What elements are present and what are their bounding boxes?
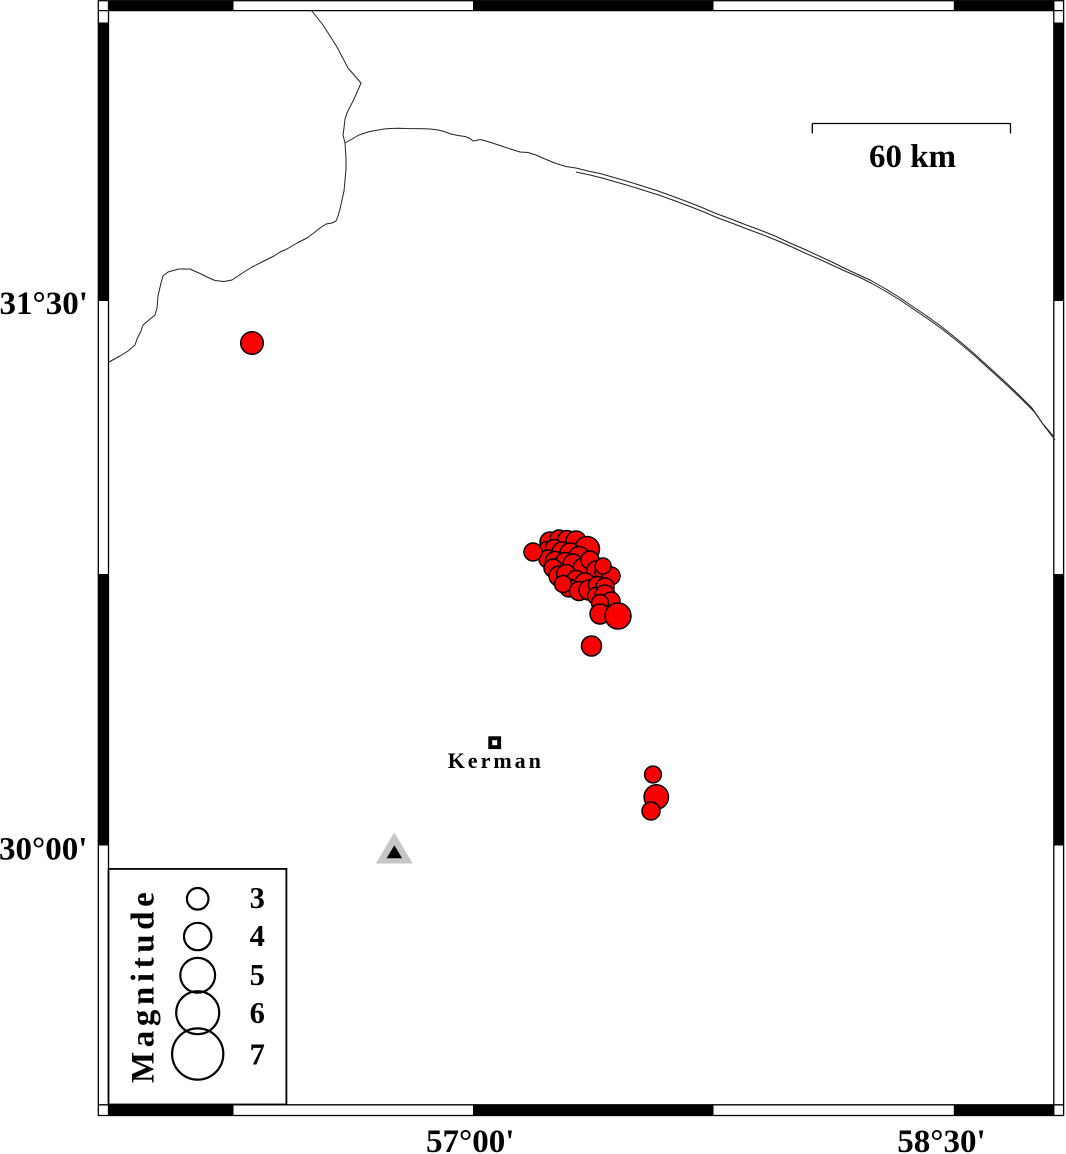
svg-text:7: 7: [250, 1038, 265, 1072]
svg-text:57°00': 57°00': [426, 1124, 514, 1154]
svg-text:31°30': 31°30': [0, 286, 88, 322]
svg-text:60 km: 60 km: [869, 139, 956, 175]
svg-text:4: 4: [250, 919, 265, 953]
svg-text:Kerman: Kerman: [448, 748, 544, 773]
svg-text:6: 6: [250, 996, 265, 1030]
svg-text:Magnitude: Magnitude: [126, 888, 162, 1083]
svg-text:30°00': 30°00': [0, 832, 87, 868]
svg-text:5: 5: [250, 958, 265, 992]
svg-text:3: 3: [250, 881, 265, 915]
svg-text:58°30': 58°30': [897, 1124, 985, 1154]
